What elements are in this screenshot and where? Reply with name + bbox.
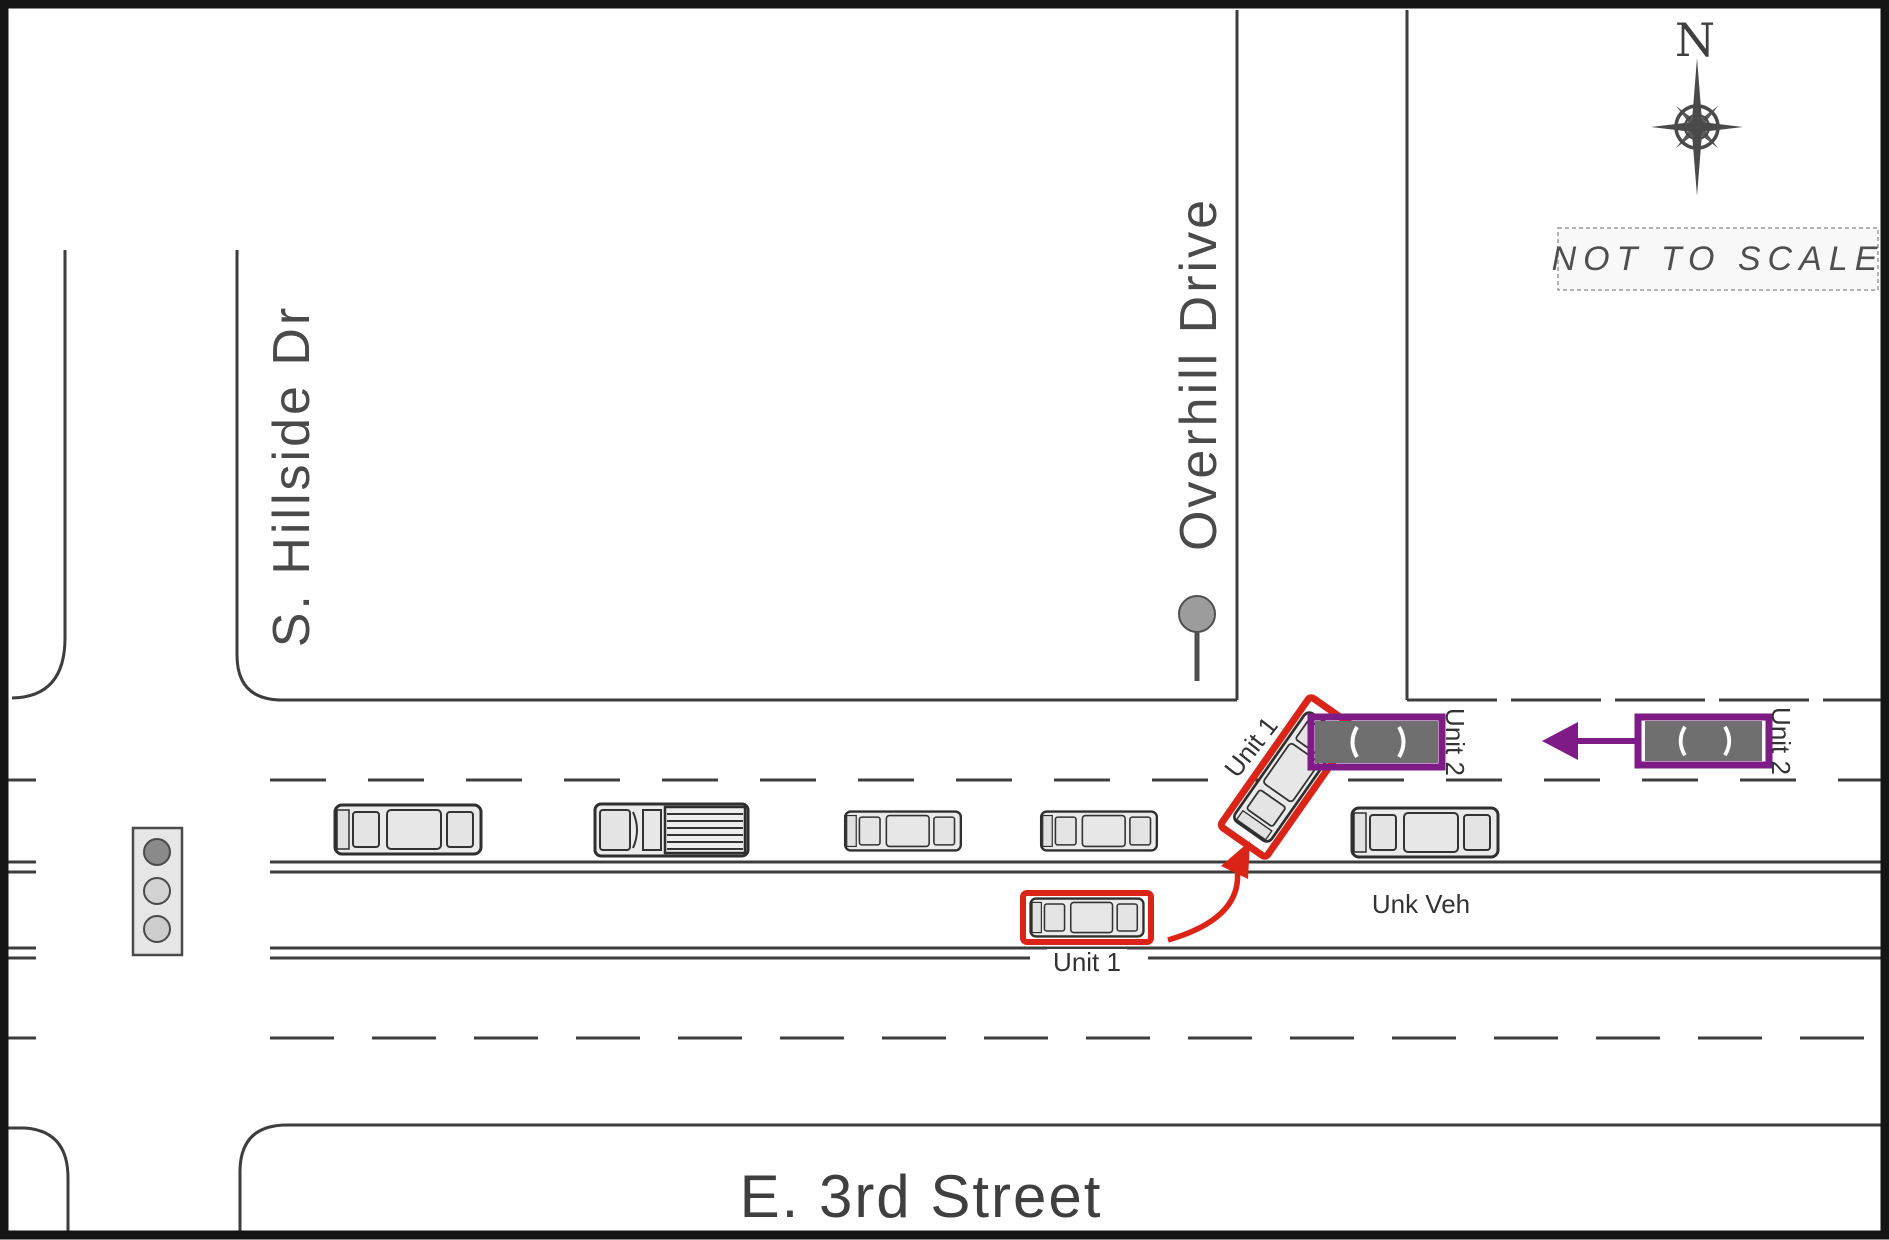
signal-lamp-top bbox=[144, 839, 170, 865]
street-label-hillside: S. Hillside Dr bbox=[266, 305, 318, 648]
unit2-impact-label: Unit 2 bbox=[1442, 708, 1468, 776]
unit2-path-arrow bbox=[1542, 722, 1640, 760]
compass-north-label: N bbox=[1675, 17, 1715, 63]
south-curb-west-corner bbox=[8, 1128, 68, 1232]
street-label-overhill: Overhill Drive bbox=[1173, 197, 1225, 551]
unit2-pre-impact-label: Unit 2 bbox=[1768, 707, 1794, 775]
signal-ball-icon bbox=[1179, 596, 1215, 632]
street-label-e3rd: E. 3rd Street bbox=[740, 1167, 1103, 1227]
queued-car-2 bbox=[845, 812, 961, 851]
compass-rose-icon bbox=[1651, 58, 1743, 196]
signal-lamp-middle bbox=[144, 878, 170, 904]
queued-car-1 bbox=[335, 805, 481, 854]
unknown-vehicle bbox=[1352, 808, 1498, 857]
unit1-path-arrow bbox=[1168, 841, 1250, 940]
queued-car-3 bbox=[1041, 812, 1157, 851]
unit1-pre-impact-label: Unit 1 bbox=[1047, 949, 1127, 975]
unknown-vehicle-label: Unk Veh bbox=[1372, 891, 1470, 917]
queued-truck bbox=[595, 804, 748, 856]
collision-diagram: S. Hillside Dr Overhill Drive E. 3rd Str… bbox=[0, 0, 1889, 1240]
hillside-west-curb bbox=[12, 250, 65, 698]
not-to-scale-label: NOT TO SCALE bbox=[1552, 242, 1885, 276]
unit2-impact-vehicle bbox=[1311, 717, 1442, 767]
unit1-pre-impact-vehicle bbox=[1023, 893, 1151, 942]
traffic-signal-icon bbox=[133, 828, 182, 955]
signal-head-pole bbox=[1179, 596, 1215, 681]
queued-vehicles bbox=[335, 804, 1498, 857]
signal-lamp-bottom bbox=[144, 916, 170, 942]
unit2-pre-impact-vehicle bbox=[1638, 717, 1769, 765]
